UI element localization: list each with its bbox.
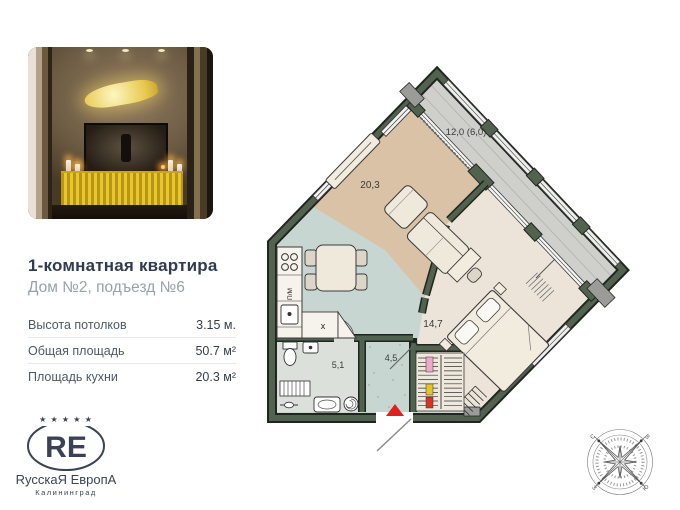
- spec-label: Общая площадь: [28, 344, 125, 358]
- page: { "listing": { "title": "1-комнатная ква…: [0, 0, 680, 510]
- radiator: [280, 381, 310, 396]
- hallway-area-label: 4,5: [385, 353, 398, 363]
- logo-city: Калининград: [35, 488, 97, 497]
- compass-east-label: В: [643, 434, 650, 441]
- developer-logo: ★ ★ ★ ★ ★ RE RусскаЯ ЕвропА Калининград: [0, 404, 140, 504]
- compass-rose: С В Ю З: [584, 426, 656, 498]
- photo-floor: [52, 205, 187, 219]
- photo-window-strip: [28, 47, 52, 219]
- spec-value: 20.3 м²: [195, 370, 236, 384]
- living-area-label: 20,3: [360, 180, 380, 191]
- spec-label: Высота потолков: [28, 318, 127, 332]
- bathroom-sink: [303, 342, 318, 353]
- spec-row-ceiling: Высота потолков 3.15 м.: [28, 312, 236, 337]
- gold-console: [61, 171, 183, 205]
- spec-value: 3.15 м.: [196, 318, 236, 332]
- photo-door-strip: [187, 47, 213, 219]
- clothes-item: [426, 357, 433, 372]
- kitchen-sink: [281, 305, 298, 324]
- lobby-photo: [28, 47, 213, 219]
- building-subtitle: Дом №2, подъезд №6: [28, 279, 185, 297]
- logo-monogram: RE: [45, 431, 87, 464]
- spec-label: Площадь кухни: [28, 370, 118, 384]
- spec-table: Высота потолков 3.15 м. Общая площадь 50…: [28, 312, 236, 389]
- tealight-glow: [161, 165, 165, 169]
- balcony-area-label: 12,0 (6,0): [446, 127, 487, 138]
- bathroom-area-label: 5,1: [332, 360, 345, 370]
- logo-stars: ★ ★ ★ ★ ★: [39, 415, 93, 424]
- dishwasher-label: П/М: [287, 288, 294, 300]
- spec-row-total-area: Общая площадь 50.7 м²: [28, 337, 236, 363]
- toilet: [283, 342, 297, 366]
- clothes-item: [426, 397, 433, 408]
- wardrobe: [416, 353, 464, 411]
- pillar: [464, 407, 480, 416]
- tv-screen: [84, 123, 168, 177]
- drain-swirl: [344, 397, 358, 411]
- ceiling-spotlight: [86, 49, 93, 52]
- spec-value: 50.7 м²: [195, 344, 236, 358]
- clothes-item: [426, 384, 433, 395]
- tv-figure: [121, 134, 131, 162]
- dining-table: [316, 245, 356, 291]
- compass-west-label: З: [590, 485, 597, 492]
- spec-row-kitchen-area: Площадь кухни 20.3 м²: [28, 363, 236, 389]
- page-title: 1-комнатная квартира: [28, 256, 218, 276]
- washer-label: x: [321, 321, 326, 331]
- floorplan: П/М x: [250, 35, 670, 465]
- shower-tray: [314, 397, 340, 412]
- ceiling-spotlight: [158, 49, 165, 52]
- logo-name: RусскаЯ ЕвропА: [16, 472, 117, 487]
- ceiling-spotlight: [122, 49, 129, 52]
- compass-cross: [599, 441, 641, 483]
- bedroom-area-label: 14,7: [423, 319, 443, 330]
